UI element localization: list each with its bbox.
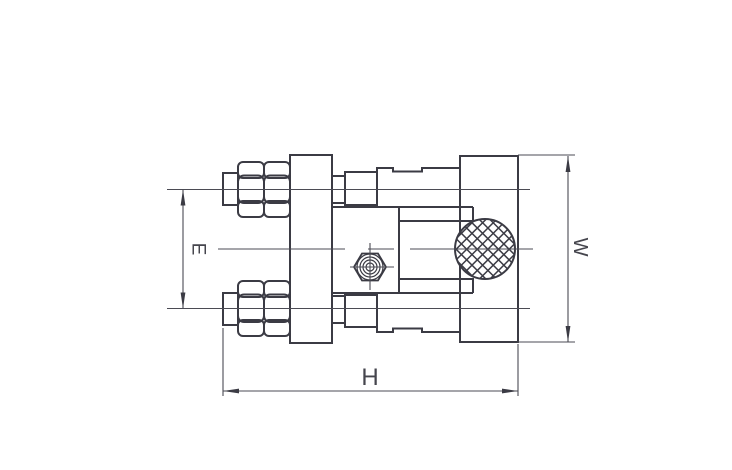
lower-boss [345,295,377,327]
dimension-e: E [181,190,209,309]
upper-section-profile [377,168,460,207]
screw-crosshair [350,243,394,290]
drawing-canvas: E H W [0,0,732,470]
upper-boss [345,172,377,205]
slot-tab-bottom [399,279,473,293]
technical-drawing: E H W [0,0,732,470]
lower-section-profile [377,293,460,332]
arrowhead-down-icon [181,293,186,309]
slot-tab-top [399,207,473,221]
adapter-body [332,168,473,332]
bolt-shank-bottom [332,296,345,323]
hex-socket-screw [350,243,394,290]
dimension-h-label: H [361,364,378,391]
arrowhead-left-icon [223,389,239,394]
arrowhead-up-icon [566,156,571,172]
dimension-h: H [223,328,518,396]
dimension-e-label: E [188,243,209,256]
dimension-w-label: W [569,238,591,257]
arrowhead-up-icon [181,190,186,206]
arrowhead-down-icon [566,326,571,342]
arrowhead-right-icon [502,389,518,394]
